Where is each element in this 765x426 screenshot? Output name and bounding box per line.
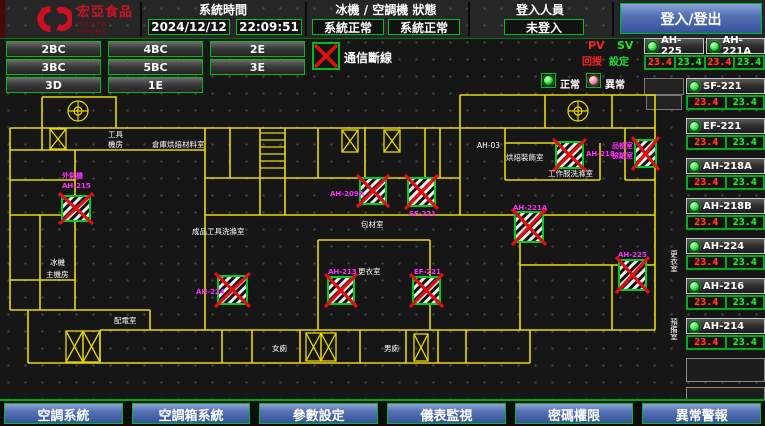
comm-loss-label: 通信斷線 (344, 49, 392, 66)
unit-name: AH-224 (703, 241, 744, 252)
device-label-sf-221: SF-221 (409, 210, 436, 218)
room-label: 倉庫烘焙材料室 (152, 139, 205, 149)
unit-name: AH-218A (703, 161, 752, 172)
device-label-ah-225: AH-225 (618, 251, 647, 259)
unit-name: AH-214 (703, 321, 744, 332)
unit-name: AH-218B (703, 201, 752, 212)
room-label: 更衣室 (358, 266, 381, 276)
ahu-status-value: 系統正常 (388, 19, 460, 35)
status-led-icon (689, 121, 700, 132)
status-led-icon (709, 41, 720, 52)
header-bar: 宏亞食品 HUNYA FOODS 系統時間 2024/12/12 22:09:5… (0, 0, 765, 39)
menu-button-meter-monitor[interactable]: 儀表監視 (387, 403, 506, 424)
brand-name: 宏亞食品 (77, 6, 139, 20)
unit-pair-values: 23.4 23.4 23.4 23.4 (644, 55, 765, 70)
login-user-label: 登入人員 (472, 1, 608, 19)
floor-button-5bc[interactable]: 5BC (108, 59, 203, 75)
sv-value: 23.4 (726, 136, 765, 149)
unit-button-ef-221[interactable]: EF-221 (686, 118, 765, 134)
device-label: 外氣機 (62, 171, 83, 180)
device-icon-ef-221[interactable] (410, 274, 443, 307)
unit-name: AH-221A (723, 35, 763, 57)
room-label: 包材室 (361, 219, 384, 229)
sv-header-label: SV (617, 39, 633, 52)
unit-values: 23.4 23.4 (686, 95, 765, 110)
sv-value: 23.4 (726, 256, 765, 269)
unit-button-ah-218a[interactable]: AH-218A (686, 158, 765, 174)
room-label: 更衣室 (669, 250, 678, 273)
unit-button-ah-224[interactable]: AH-224 (686, 238, 765, 254)
unit-block-ah-214: AH-214 23.4 23.4 (686, 318, 765, 350)
device-icon-inspection-room[interactable] (632, 137, 659, 170)
unit-values: 23.4 23.4 (686, 215, 765, 230)
unit-pair-row: AH-225 AH-221A (644, 38, 765, 54)
header-divider (305, 2, 307, 36)
login-logout-button[interactable]: 登入/登出 (620, 3, 762, 34)
pv-value: 23.4 (645, 56, 675, 69)
pv-value: 23.4 (687, 136, 726, 149)
device-icon-ah-221a[interactable] (512, 209, 546, 245)
floor-button-4bc[interactable]: 4BC (108, 41, 203, 57)
device-label: 檢驗室 (612, 151, 633, 160)
room-label: 工具 (108, 130, 123, 139)
device-label: 品檢室 (612, 141, 633, 150)
status-led-icon (689, 241, 700, 252)
chiller-status-value: 系統正常 (312, 19, 384, 35)
room-label: 預備室 (669, 318, 678, 341)
unit-name: AH-225 (661, 35, 701, 57)
system-clock-value: 22:09:51 (236, 19, 302, 35)
room-label: 主機房 (46, 269, 69, 279)
pv-name-label: 回授 (582, 53, 602, 68)
stair-icon (260, 133, 285, 168)
room-label: 工作服洗滌室 (548, 168, 593, 178)
status-led-icon (689, 201, 700, 212)
device-label-ah-209a: AH-209A (330, 190, 365, 198)
room-label: 成品工具洗滌室 (192, 226, 245, 236)
brand-subtitle: HUNYA FOODS (77, 20, 139, 36)
device-label-ah-213: AH-213 (328, 268, 357, 276)
unit-block-sf-221: SF-221 23.4 23.4 (686, 78, 765, 110)
sv-value: 23.4 (726, 336, 765, 349)
menu-button-ahu-system[interactable]: 空調箱系統 (132, 403, 251, 424)
floor-button-3e[interactable]: 3E (210, 59, 305, 75)
device-label-ah-215: AH-215 (62, 182, 91, 190)
unit-block-ef-221: EF-221 23.4 23.4 (686, 118, 765, 150)
device-label-ef-221: EF-221 (414, 268, 441, 276)
unit-button-sf-221[interactable]: SF-221 (686, 78, 765, 94)
status-led-icon (689, 81, 700, 92)
unit-values: 23.4 23.4 (686, 255, 765, 270)
sv-value: 23.4 (734, 56, 764, 69)
device-icon-ah-218[interactable] (553, 139, 586, 171)
unit-button-ah-225[interactable]: AH-225 (644, 38, 704, 54)
unit-block-ah-224: AH-224 23.4 23.4 (686, 238, 765, 270)
floor-button-2bc[interactable]: 2BC (6, 41, 101, 57)
status-led-icon (689, 321, 700, 332)
menu-button-password-auth[interactable]: 密碼權限 (515, 403, 634, 424)
normal-led-icon (541, 73, 556, 88)
pv-value: 23.4 (687, 296, 726, 309)
header-divider (468, 2, 470, 36)
floorplan: 外氣機 AH-215 AH-209A SF-221 AH-221A AH-218… (0, 92, 688, 398)
unit-values: 23.4 23.4 (686, 295, 765, 310)
sv-value: 23.4 (726, 216, 765, 229)
login-user-value: 未登入 (504, 19, 584, 35)
unit-button-ah-216[interactable]: AH-216 (686, 278, 765, 294)
pv-header-label: PV (588, 39, 605, 52)
pv-value: 23.4 (687, 216, 726, 229)
floor-button-2e[interactable]: 2E (210, 41, 305, 57)
logo-edge-strip (0, 0, 5, 38)
sv-value: 23.4 (726, 96, 765, 109)
abnormal-led-icon (586, 73, 601, 88)
unit-values: 23.4 23.4 (686, 175, 765, 190)
unit-button-ah-218b[interactable]: AH-218B (686, 198, 765, 214)
machine-status-label: 冰機 / 空調機 狀態 (308, 1, 464, 19)
sv-value: 23.4 (726, 176, 765, 189)
device-label-ah-224: AH-224 (196, 288, 225, 296)
device-icon-ah-215[interactable] (59, 193, 93, 224)
unit-name: EF-221 (703, 121, 741, 132)
brand-logo-icon (36, 3, 72, 35)
header-divider (140, 2, 142, 36)
sv-name-label: 設定 (609, 53, 629, 68)
pv-value: 23.4 (687, 96, 726, 109)
room-label: 烘焙裝飾室 (506, 152, 544, 162)
menu-button-ac-system[interactable]: 空調系統 (4, 403, 123, 424)
unit-block-ah-218a: AH-218A 23.4 23.4 (686, 158, 765, 190)
floor-button-3bc[interactable]: 3BC (6, 59, 101, 75)
unit-values: 23.4 23.4 (686, 335, 765, 350)
floor-button-1e[interactable]: 1E (108, 77, 203, 93)
normal-legend-label: 正常 (560, 76, 580, 91)
device-icon-ah-225[interactable] (616, 257, 649, 293)
pv-value: 23.4 (687, 176, 726, 189)
device-icon-sf-221[interactable] (405, 175, 438, 209)
status-led-icon (689, 281, 700, 292)
menu-button-parameters[interactable]: 參數設定 (259, 403, 378, 424)
room-label: 男廁 (384, 343, 399, 353)
status-led-icon (689, 161, 700, 172)
sv-value: 23.4 (726, 296, 765, 309)
system-date-value: 2024/12/12 (148, 19, 230, 35)
system-time-label: 系統時間 (145, 1, 301, 19)
room-label: AH-03 (477, 141, 500, 150)
unit-name: AH-216 (703, 281, 744, 292)
unit-block-ah-218b: AH-218B 23.4 23.4 (686, 198, 765, 230)
spiral-stair-icon (68, 101, 588, 121)
room-label: 配電室 (114, 315, 137, 325)
header-divider (612, 2, 614, 36)
pv-value: 23.4 (705, 56, 735, 69)
brand-text: 宏亞食品 HUNYA FOODS (77, 6, 139, 36)
room-label: 機房 (108, 139, 123, 149)
unit-values: 23.4 23.4 (686, 135, 765, 150)
device-label-ah-218: AH-218 (586, 150, 615, 158)
abnormal-legend-label: 異常 (605, 76, 625, 91)
room-label: 冰機 (50, 257, 65, 267)
device-icon-ah-213[interactable] (325, 274, 357, 307)
pv-value: 23.4 (687, 336, 726, 349)
unit-button-ah-214[interactable]: AH-214 (686, 318, 765, 334)
floor-button-3d[interactable]: 3D (6, 77, 101, 93)
sv-value: 23.4 (675, 56, 705, 69)
room-label: 女廁 (272, 343, 287, 353)
unit-name: SF-221 (703, 81, 742, 92)
empty-slot-box (686, 358, 765, 382)
device-label-ah-221a: AH-221A (513, 204, 548, 212)
floorplan-walls (10, 95, 655, 363)
unit-list: SF-221 23.4 23.4 EF-221 23.4 23.4 AH-218… (686, 78, 765, 411)
unit-block-ah-216: AH-216 23.4 23.4 (686, 278, 765, 310)
pv-value: 23.4 (687, 256, 726, 269)
bottom-menu-bar: 空調系統 空調箱系統 參數設定 儀表監視 密碼權限 異常警報 (0, 399, 765, 426)
status-led-icon (647, 41, 658, 52)
menu-button-alarm[interactable]: 異常警報 (642, 403, 761, 424)
comm-loss-icon (312, 42, 340, 70)
shaft-x-markers (50, 129, 428, 362)
unit-button-ah-221a[interactable]: AH-221A (706, 38, 765, 54)
